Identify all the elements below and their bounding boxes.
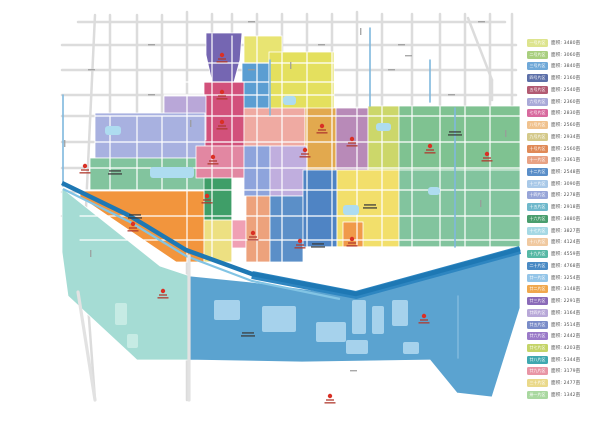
legend-chip: 三十片区 <box>527 379 548 387</box>
legend-chip: 十号片区 <box>527 145 548 153</box>
legend-item: 廿五片区面积: 3514亩 <box>527 320 580 330</box>
legend-area-value: 面积: 4203亩 <box>551 345 580 351</box>
legend-area-value: 面积: 5344亩 <box>551 357 580 363</box>
legend-area-value: 面积: 2560亩 <box>551 146 580 152</box>
legend-item: 四号片区面积: 2160亩 <box>527 73 580 83</box>
legend-area-value: 面积: 3148亩 <box>551 286 580 292</box>
zone-periwinkle-west <box>95 113 205 158</box>
legend-item: 廿四片区面积: 3164亩 <box>527 308 580 318</box>
legend-area-value: 面积: 2934亩 <box>551 134 580 140</box>
legend-chip: 廿八片区 <box>527 356 548 364</box>
legend-item: 一号片区面积: 3480亩 <box>527 38 580 48</box>
legend-chip: 廿七片区 <box>527 344 548 352</box>
legend-chip: 廿一片区 <box>527 274 548 282</box>
legend-item: 廿一片区面积: 3254亩 <box>527 273 580 283</box>
legend-area-value: 面积: 3514亩 <box>551 322 580 328</box>
legend-area-value: 面积: 4124亩 <box>551 239 580 245</box>
zone-blue-mid <box>270 196 303 262</box>
zone-yellow-northeast <box>269 52 334 115</box>
legend-chip: 十九片区 <box>527 250 548 258</box>
legend-chip: 廿五片区 <box>527 321 548 329</box>
legend-item: 十七片区面积: 3827亩 <box>527 226 580 236</box>
legend-area-value: 面积: 2477亩 <box>551 380 580 386</box>
legend-item: 廿九片区面积: 3179亩 <box>527 366 580 376</box>
poi-marker <box>325 394 336 404</box>
legend-chip: 十八片区 <box>527 238 548 246</box>
zone-pink-mid <box>232 220 246 248</box>
legend-area-value: 面积: 3164亩 <box>551 310 580 316</box>
legend-area-value: 面积: 2918亩 <box>551 204 580 210</box>
zone-darkgreen-mid <box>204 178 232 220</box>
legend-chip: 十五片区 <box>527 203 548 211</box>
zone-rose-mid <box>196 146 244 178</box>
legend-chip: 十六片区 <box>527 215 548 223</box>
legend-area-value: 面积: 2548亩 <box>551 169 580 175</box>
legend-item: 十八片区面积: 4124亩 <box>527 237 580 247</box>
legend-item: 廿七片区面积: 4203亩 <box>527 343 580 353</box>
legend-item: 十五片区面积: 2918亩 <box>527 202 580 212</box>
legend-item: 廿三片区面积: 2291亩 <box>527 296 580 306</box>
legend-item: 十九片区面积: 4559亩 <box>527 249 580 259</box>
legend-chip: 六号片区 <box>527 98 548 106</box>
legend-chip: 七号片区 <box>527 109 548 117</box>
legend-item: 十四片区面积: 2278亩 <box>527 190 580 200</box>
legend-chip: 五号片区 <box>527 86 548 94</box>
legend-item: 八号片区面积: 2560亩 <box>527 120 580 130</box>
legend-chip: 廿四片区 <box>527 309 548 317</box>
legend-chip: 十三片区 <box>527 180 548 188</box>
legend-area-value: 面积: 3480亩 <box>551 40 580 46</box>
legend-item: 廿八片区面积: 5344亩 <box>527 355 580 365</box>
legend-area-value: 面积: 2560亩 <box>551 122 580 128</box>
legend-area-value: 面积: 2278亩 <box>551 192 580 198</box>
legend-item: 十一片区面积: 3361亩 <box>527 155 580 165</box>
legend-chip: 四号片区 <box>527 74 548 82</box>
zone-green-southeast <box>399 170 520 247</box>
legend-area-value: 面积: 4559亩 <box>551 251 580 257</box>
legend-chip: 十一片区 <box>527 156 548 164</box>
legend-chip: 廿九片区 <box>527 367 548 375</box>
legend-chip: 三号片区 <box>527 62 548 70</box>
legend-item: 廿二片区面积: 3148亩 <box>527 284 580 294</box>
legend-area-value: 面积: 2442亩 <box>551 333 580 339</box>
legend-area-value: 面积: 1342亩 <box>551 392 580 398</box>
legend-area-value: 面积: 2540亩 <box>551 87 580 93</box>
zone-amber-center <box>305 108 336 170</box>
legend-area-value: 面积: 3880亩 <box>551 216 580 222</box>
legend-chip: 九号片区 <box>527 133 548 141</box>
legend-area-value: 面积: 2830亩 <box>551 110 580 116</box>
legend-item: 十号片区面积: 2560亩 <box>527 144 580 154</box>
legend-item: 十三片区面积: 3090亩 <box>527 179 580 189</box>
legend-area-value: 面积: 3840亩 <box>551 63 580 69</box>
legend-item: 卅一片区面积: 1342亩 <box>527 390 580 400</box>
legend-chip: 一号片区 <box>527 39 548 47</box>
zone-salmon-center <box>244 108 305 146</box>
legend-area-value: 面积: 2360亩 <box>551 99 580 105</box>
legend-item: 廿六片区面积: 2442亩 <box>527 331 580 341</box>
zoning-map <box>0 0 612 428</box>
legend-area-value: 面积: 3361亩 <box>551 157 580 163</box>
legend-chip: 廿二片区 <box>527 285 548 293</box>
legend-chip: 八号片区 <box>527 121 548 129</box>
legend-chip: 廿三片区 <box>527 297 548 305</box>
legend-item: 二号片区面积: 3060亩 <box>527 50 580 60</box>
zone-salmon-mid <box>246 196 270 262</box>
legend-item: 二十片区面积: 4768亩 <box>527 261 580 271</box>
legend-item: 五号片区面积: 2540亩 <box>527 85 580 95</box>
legend-chip: 廿六片区 <box>527 332 548 340</box>
legend-area-value: 面积: 2160亩 <box>551 75 580 81</box>
legend-area-value: 面积: 3254亩 <box>551 275 580 281</box>
legend-item: 九号片区面积: 2934亩 <box>527 132 580 142</box>
legend-item: 三十片区面积: 2477亩 <box>527 378 580 388</box>
legend-area-value: 面积: 2291亩 <box>551 298 580 304</box>
legend-area-value: 面积: 3060亩 <box>551 52 580 58</box>
legend-chip: 二十片区 <box>527 262 548 270</box>
legend-chip: 卅一片区 <box>527 391 548 399</box>
legend-chip: 十二片区 <box>527 168 548 176</box>
legend-item: 七号片区面积: 2830亩 <box>527 108 580 118</box>
legend-item: 十二片区面积: 2548亩 <box>527 167 580 177</box>
legend-area-value: 面积: 3827亩 <box>551 228 580 234</box>
legend-area-value: 面积: 3179亩 <box>551 368 580 374</box>
legend-chip: 二号片区 <box>527 51 548 59</box>
legend-item: 三号片区面积: 3840亩 <box>527 61 580 71</box>
map-document: 一号片区面积: 3480亩二号片区面积: 3060亩三号片区面积: 3840亩四… <box>0 0 612 428</box>
legend-area-value: 面积: 3090亩 <box>551 181 580 187</box>
legend-item: 十六片区面积: 3880亩 <box>527 214 580 224</box>
zone-blue-north <box>242 63 269 112</box>
legend-chip: 十七片区 <box>527 227 548 235</box>
legend-chip: 十四片区 <box>527 191 548 199</box>
legend-item: 六号片区面积: 2360亩 <box>527 97 580 107</box>
legend-area-value: 面积: 4768亩 <box>551 263 580 269</box>
